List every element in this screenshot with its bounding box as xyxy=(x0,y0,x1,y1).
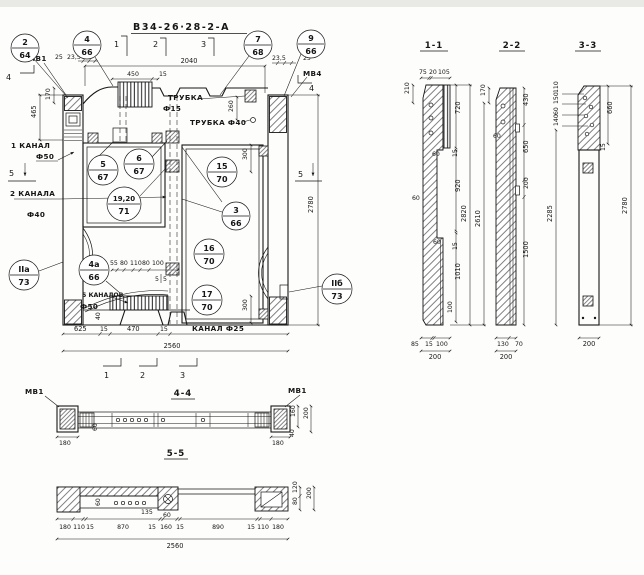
section-title-2-2: 2-2 xyxy=(503,41,522,51)
dim-2820: 2820 xyxy=(460,205,468,222)
svg-text:70: 70 xyxy=(203,257,215,266)
embed-plate xyxy=(259,309,268,319)
section-4-4: 4-4 МВ1 МВ1 180 60 180 40 160 200 xyxy=(25,386,311,447)
balloon-IIb-73: IIб73 xyxy=(322,274,352,304)
svg-text:73: 73 xyxy=(18,278,29,287)
label-trubka-f40: ТРУБКА Ф40 xyxy=(190,118,246,127)
slab-body xyxy=(78,412,271,428)
drawing-title: В34-26·28-2-А xyxy=(133,22,230,33)
balloon-15-70: 1570 xyxy=(207,157,237,187)
dim-60: 60 xyxy=(493,133,501,140)
svg-text:4а: 4а xyxy=(89,260,100,269)
dim-180: 180 xyxy=(59,440,71,447)
dim-160: 160 xyxy=(290,405,297,417)
foot xyxy=(120,310,163,325)
svg-text:5: 5 xyxy=(100,160,106,169)
svg-text:6: 6 xyxy=(136,154,142,163)
svg-text:66: 66 xyxy=(88,273,100,282)
cut-4-right: 4 xyxy=(309,84,314,93)
section-3-3-head xyxy=(578,86,600,150)
dim-105: 105 xyxy=(438,69,450,76)
dim-260: 260 xyxy=(228,100,235,112)
embed-plate xyxy=(88,133,98,143)
dim-890: 890 xyxy=(212,524,224,531)
balloon-5-67: 567 xyxy=(88,155,118,185)
svg-text:73: 73 xyxy=(331,292,342,301)
dim-80: 80 xyxy=(142,260,150,267)
cut-5-left: 5 xyxy=(9,169,14,178)
cut-1-top: 1 xyxy=(114,40,119,49)
label-2-kanala: 2 КАНАЛА xyxy=(10,189,55,198)
dim-180: 180 xyxy=(272,524,284,531)
dim-60: 60 xyxy=(92,423,99,431)
balloon-3-66: 366 xyxy=(222,202,250,230)
svg-text:70: 70 xyxy=(216,175,228,184)
dim-300: 300 xyxy=(242,148,249,160)
dim-470: 470 xyxy=(127,325,140,333)
svg-text:71: 71 xyxy=(118,207,130,216)
embed-plate xyxy=(152,133,162,143)
dim-170: 170 xyxy=(480,84,487,96)
drawing-sheet: В34-26·28-2-А xyxy=(0,0,644,575)
label-f40: Ф40 xyxy=(27,210,45,219)
dim-110: 110 xyxy=(257,524,269,531)
dim-2560: 2560 xyxy=(164,342,181,350)
cut-4-left: 4 xyxy=(6,73,11,82)
svg-text:67: 67 xyxy=(133,167,144,176)
dim-625: 625 xyxy=(74,325,87,333)
balloon-16-70: 1670 xyxy=(194,239,224,269)
embed-plate xyxy=(259,146,268,156)
cut-2-bottom: 2 xyxy=(140,371,145,380)
dim-200: 200 xyxy=(306,487,313,499)
dim-20: 20 xyxy=(429,69,437,76)
dim-15: 15 xyxy=(86,524,94,531)
balloon-4-66: 466 xyxy=(73,31,101,59)
panel-top-left-curve xyxy=(83,87,118,104)
label-mv4: МВ4 xyxy=(303,69,322,78)
svg-text:66: 66 xyxy=(230,219,242,228)
dim-15: 15 xyxy=(148,524,156,531)
section-3-3: 3-3 110 150 60 140 660 15 2780 200 xyxy=(553,41,633,348)
label-f50: Ф50 xyxy=(80,302,98,311)
dim-15: 15 xyxy=(159,71,167,78)
corrugated-joint xyxy=(118,82,152,107)
dim-15: 15 xyxy=(100,326,108,333)
svg-text:9: 9 xyxy=(308,34,314,43)
dim-15: 15 xyxy=(160,326,168,333)
label-5-kanalov: 5 КАНАЛОВ xyxy=(82,292,124,299)
svg-text:67: 67 xyxy=(97,173,108,182)
dim-210: 210 xyxy=(404,82,411,94)
svg-text:66: 66 xyxy=(305,47,317,56)
svg-text:19,20: 19,20 xyxy=(113,195,135,203)
panel-left-rib xyxy=(63,95,83,325)
dim-23-5: 23,5 xyxy=(272,55,286,62)
dim-870: 870 xyxy=(117,524,129,531)
svg-text:70: 70 xyxy=(201,303,213,312)
dim-75: 75 xyxy=(419,69,427,76)
dim-70: 70 xyxy=(515,341,523,348)
dim-15: 15 xyxy=(425,341,433,348)
label-trubka: ТРУБКА xyxy=(168,93,203,102)
blueprint-svg: В34-26·28-2-А xyxy=(0,0,644,575)
cut-3-bottom: 3 xyxy=(180,371,185,380)
dim-450: 450 xyxy=(127,71,139,78)
dim-135: 135 xyxy=(141,509,153,516)
label-f50: Ф50 xyxy=(36,152,54,161)
dim-180: 180 xyxy=(272,440,284,447)
svg-text:16: 16 xyxy=(203,244,215,253)
section-title-3-3: 3-3 xyxy=(579,41,598,51)
dim-130: 130 xyxy=(497,341,509,348)
dim-150: 150 xyxy=(553,92,560,104)
dim-80: 80 xyxy=(120,260,128,267)
dim-180: 180 xyxy=(59,524,71,531)
balloon-IIa-73: IIа73 xyxy=(9,260,39,290)
balloon-7-68: 768 xyxy=(244,31,272,59)
dim-15: 15 xyxy=(452,242,459,250)
dim-140: 140 xyxy=(553,114,560,126)
balloon-4a-66: 4а66 xyxy=(79,255,109,285)
dim-2285: 2285 xyxy=(546,205,554,222)
dim-60: 60 xyxy=(412,195,420,202)
dim-465: 465 xyxy=(30,105,38,118)
dim-120: 120 xyxy=(292,481,299,493)
label-1-kanal: 1 КАНАЛ xyxy=(11,141,50,150)
dim-60: 60 xyxy=(95,498,102,506)
balloon-9-66: 966 xyxy=(297,30,325,58)
dim-2560: 2560 xyxy=(167,542,184,550)
dim-55: 55 xyxy=(110,260,118,267)
section-title-4-4: 4-4 xyxy=(174,389,193,399)
dim-15: 15 xyxy=(247,524,255,531)
cut-3-top: 3 xyxy=(201,40,206,49)
dim-200: 200 xyxy=(523,177,530,189)
svg-text:7: 7 xyxy=(255,35,261,44)
dim-430: 430 xyxy=(522,93,530,106)
dim-200: 200 xyxy=(500,353,513,361)
dim-920: 920 xyxy=(454,179,462,192)
dim-1010: 1010 xyxy=(454,263,462,280)
dim-15: 15 xyxy=(176,524,184,531)
dim-160: 160 xyxy=(160,524,172,531)
dim-660: 660 xyxy=(606,101,614,114)
dim-85: 85 xyxy=(411,341,419,348)
svg-text:64: 64 xyxy=(19,51,31,60)
dim-60: 60 xyxy=(163,512,171,519)
section-5-5: 5-5 180 110 15 870 15 160 15 890 15 110 … xyxy=(57,449,314,550)
dim-100: 100 xyxy=(447,301,454,313)
cut-1-bottom: 1 xyxy=(104,371,109,380)
dim-110: 110 xyxy=(130,260,142,267)
balloon-2-64: 264 xyxy=(11,34,39,62)
label-kanal-f25: КАНАЛ Ф25 xyxy=(192,324,244,333)
dim-5: 5 xyxy=(163,276,167,283)
dim-15: 15 xyxy=(452,149,459,157)
dim-40: 40 xyxy=(95,312,102,320)
dim-100: 100 xyxy=(436,341,448,348)
section-1-1: 1-1 75 20 105 210 720 15 920 60 60 60 15… xyxy=(404,41,486,361)
dim-2780: 2780 xyxy=(621,197,629,214)
label-mv1-right: МВ1 xyxy=(288,386,307,395)
section-title-5-5: 5-5 xyxy=(167,449,186,459)
svg-text:IIа: IIа xyxy=(18,265,29,274)
dim-200: 200 xyxy=(583,340,596,348)
svg-text:68: 68 xyxy=(252,48,264,57)
section-title-1-1: 1-1 xyxy=(425,41,444,51)
left-block xyxy=(57,487,80,512)
dim-720: 720 xyxy=(454,101,462,114)
plan-view: В34-26·28-2-А xyxy=(6,22,352,380)
section-2-2: 2-2 170 430 650 200 1500 60 2285 130 70 … xyxy=(480,41,556,361)
dim-1500: 1500 xyxy=(522,241,530,258)
dim-2040: 2040 xyxy=(181,57,198,65)
svg-text:66: 66 xyxy=(81,48,93,57)
dim-2780: 2780 xyxy=(307,196,315,213)
section-1-1-body xyxy=(423,85,443,325)
svg-text:15: 15 xyxy=(216,162,228,171)
svg-text:4: 4 xyxy=(84,35,90,44)
dim-15: 15 xyxy=(600,143,607,151)
cut-5-right: 5 xyxy=(298,170,303,179)
dim-100: 100 xyxy=(152,260,164,267)
tube-embed xyxy=(245,90,256,102)
svg-text:17: 17 xyxy=(201,290,212,299)
dim-2610: 2610 xyxy=(474,210,482,227)
balloon-19-20-71: 19,2071 xyxy=(107,187,141,221)
svg-text:IIб: IIб xyxy=(331,278,343,288)
svg-text:2: 2 xyxy=(22,38,28,47)
dim-110: 110 xyxy=(553,81,560,93)
balloon-17-70: 1770 xyxy=(192,285,222,315)
scan-edge xyxy=(0,0,644,7)
svg-text:3: 3 xyxy=(233,206,239,215)
dim-650: 650 xyxy=(522,140,530,153)
dim-25: 25 xyxy=(55,54,63,61)
label-f15: Ф15 xyxy=(163,104,181,113)
dim-110: 110 xyxy=(73,524,85,531)
dim-200: 200 xyxy=(303,407,310,419)
balloon-6-67: 667 xyxy=(124,149,154,179)
dim-60: 60 xyxy=(432,151,440,158)
dim-80: 80 xyxy=(292,497,299,505)
tube-f40 xyxy=(251,118,256,123)
cut-2-top: 2 xyxy=(153,40,158,49)
dim-60: 60 xyxy=(433,239,441,246)
dim-5: 5 xyxy=(155,276,159,283)
dim-200: 200 xyxy=(429,353,442,361)
dim-170: 170 xyxy=(45,88,52,100)
dim-300: 300 xyxy=(242,299,249,311)
dim-40: 40 xyxy=(289,429,296,437)
dim-60: 60 xyxy=(553,107,560,115)
label-mv1-left: МВ1 xyxy=(25,387,44,396)
